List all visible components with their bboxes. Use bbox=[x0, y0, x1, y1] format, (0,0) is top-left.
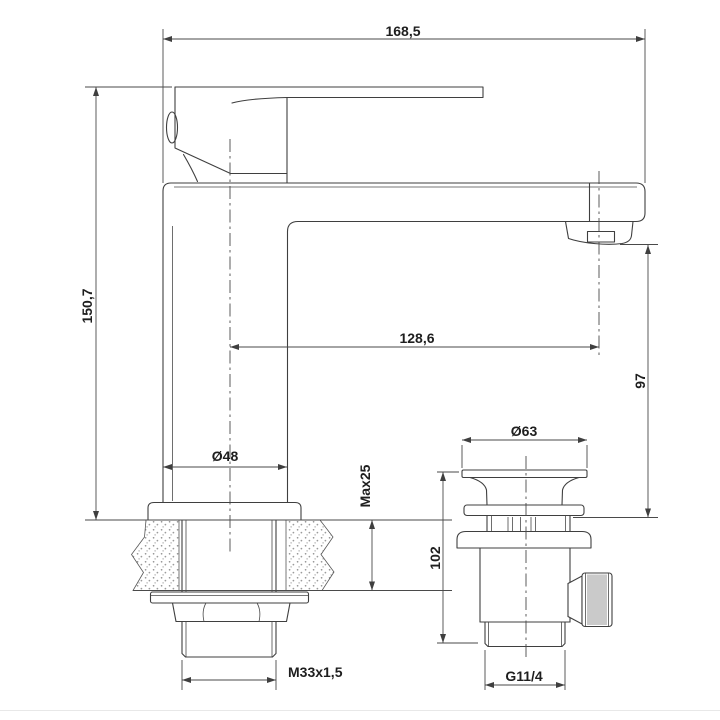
knurled-knob bbox=[582, 573, 612, 627]
dimension-spout-height: 97 bbox=[573, 245, 658, 518]
arrow-down bbox=[93, 511, 99, 520]
handle-pivot-cap bbox=[167, 112, 178, 143]
waste-thread-shank bbox=[485, 622, 565, 647]
waste-top-disc bbox=[462, 470, 587, 478]
countertop-section bbox=[85, 520, 452, 591]
dim-label-mounting-thread: M33x1,5 bbox=[288, 664, 343, 680]
arrow-down bbox=[645, 509, 651, 518]
ext-line bbox=[163, 29, 645, 183]
handle-base-arc bbox=[184, 155, 198, 182]
counter-section-right bbox=[286, 520, 334, 591]
base-plate bbox=[148, 503, 301, 521]
waste-neck-left bbox=[470, 478, 487, 506]
dimension-spout-reach: 128,6 bbox=[230, 330, 599, 350]
dimension-waste-diameter: Ø63 bbox=[462, 423, 587, 468]
handle-cap bbox=[175, 87, 287, 174]
arrow-left bbox=[163, 464, 172, 470]
dim-label-spout-reach: 128,6 bbox=[399, 330, 434, 346]
counter-section-left bbox=[132, 520, 180, 591]
arrow-down bbox=[369, 582, 375, 591]
arrow-left bbox=[230, 344, 239, 350]
technical-drawing-page: 168,5 150,7 128,6 97 Ø48 bbox=[0, 0, 720, 720]
nut-facet-left bbox=[203, 603, 206, 622]
waste-valve-view bbox=[457, 456, 612, 660]
dim-label-body-diameter: Ø48 bbox=[212, 448, 239, 464]
arrow-right bbox=[578, 437, 587, 443]
arrow-right bbox=[267, 677, 276, 683]
ext-line bbox=[462, 445, 587, 468]
arrow-up bbox=[369, 520, 375, 529]
arrow-left bbox=[462, 437, 471, 443]
arrow-up bbox=[645, 245, 651, 254]
aerator bbox=[588, 232, 615, 243]
arrow-left bbox=[163, 36, 172, 42]
dim-label-deck-thickness: Max25 bbox=[357, 464, 373, 507]
mounting-thread-shank bbox=[182, 622, 276, 658]
dimension-waste-height: 102 bbox=[427, 472, 478, 643]
dim-label-waste-diameter: Ø63 bbox=[511, 423, 538, 439]
arrow-right bbox=[556, 682, 565, 688]
nut-facet-right bbox=[257, 603, 260, 622]
dim-label-width-total: 168,5 bbox=[385, 23, 420, 39]
arrow-right bbox=[278, 464, 287, 470]
dimension-width-total: 168,5 bbox=[163, 23, 645, 183]
ext-line bbox=[182, 660, 276, 690]
waste-lower-flange bbox=[457, 532, 591, 549]
arrow-right bbox=[590, 344, 599, 350]
dim-label-waste-height: 102 bbox=[427, 546, 443, 570]
waste-neck-right bbox=[562, 478, 579, 506]
knob-stub bbox=[568, 576, 582, 624]
dim-label-waste-thread: G11/4 bbox=[505, 668, 543, 684]
dimension-deck-thickness: Max25 bbox=[357, 464, 375, 590]
arrow-right bbox=[636, 36, 645, 42]
washer-plate bbox=[151, 592, 309, 603]
dim-label-spout-height: 97 bbox=[632, 373, 648, 389]
dimension-waste-thread: G11/4 bbox=[485, 650, 565, 690]
dim-label-height-total: 150,7 bbox=[79, 288, 95, 323]
waste-thread-inner bbox=[489, 622, 562, 646]
arrow-left bbox=[485, 682, 494, 688]
faucet-dimension-drawing: 168,5 150,7 128,6 97 Ø48 bbox=[0, 0, 720, 720]
handle-lever bbox=[175, 87, 483, 98]
arrow-up bbox=[440, 472, 446, 481]
mounting-nut bbox=[173, 603, 291, 622]
dimension-height-total: 150,7 bbox=[79, 87, 172, 520]
handle-lever-underside bbox=[232, 98, 287, 104]
arrow-up bbox=[93, 87, 99, 96]
waste-crown-slots bbox=[508, 517, 536, 532]
dimension-mounting-thread: M33x1,5 bbox=[182, 660, 343, 690]
arrow-down bbox=[440, 634, 446, 643]
waste-mid-flange bbox=[464, 505, 584, 516]
arrow-left bbox=[182, 677, 191, 683]
dimension-body-diameter: Ø48 bbox=[163, 448, 287, 470]
